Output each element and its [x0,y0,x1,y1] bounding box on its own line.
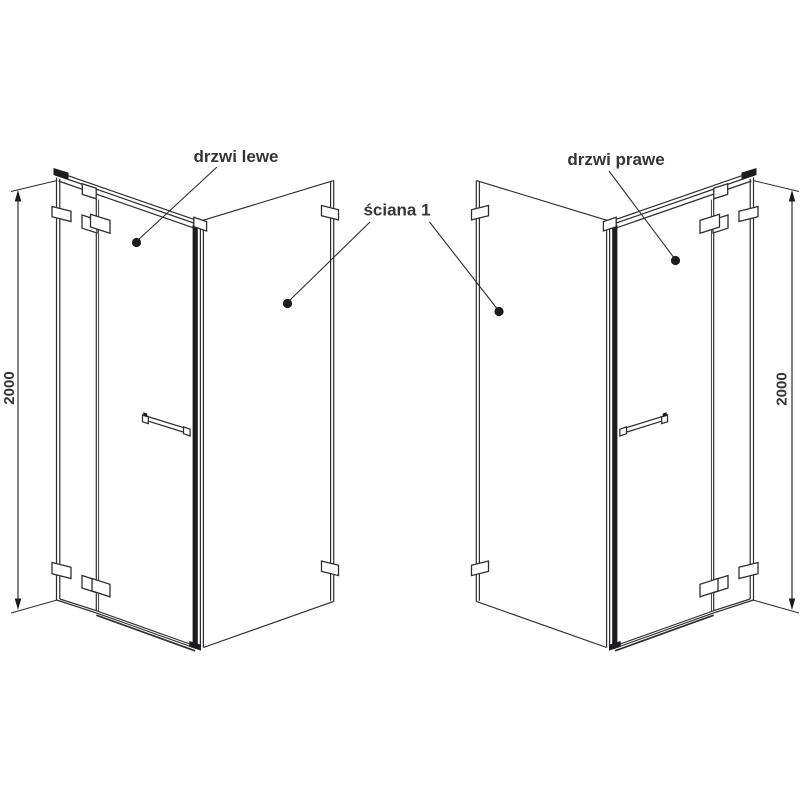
callout-dot-wall-left [283,299,292,308]
callout-dot-left-door [132,238,141,247]
shower-enclosure-diagram: drzwi lewe ściana 1 drzwi prawe 2000 200… [0,0,800,800]
leader-wall-left [288,222,370,302]
left-enclosure-drawing [11,168,339,651]
dimension-value-right: 2000 [774,372,791,405]
shower-enclosure-diagram-page: drzwi lewe ściana 1 drzwi prawe 2000 200… [0,0,800,800]
leader-wall-right [430,222,499,311]
label-right-door: drzwi prawe [567,150,664,169]
label-left-door: drzwi lewe [193,147,278,166]
label-wall: ściana 1 [363,201,430,220]
callouts [132,167,680,316]
leader-right-door [609,171,675,259]
callout-dot-right-door [671,256,680,265]
right-enclosure-drawing [472,168,800,651]
callout-dot-wall-right [494,307,503,316]
dimension-value-left: 2000 [1,371,18,404]
